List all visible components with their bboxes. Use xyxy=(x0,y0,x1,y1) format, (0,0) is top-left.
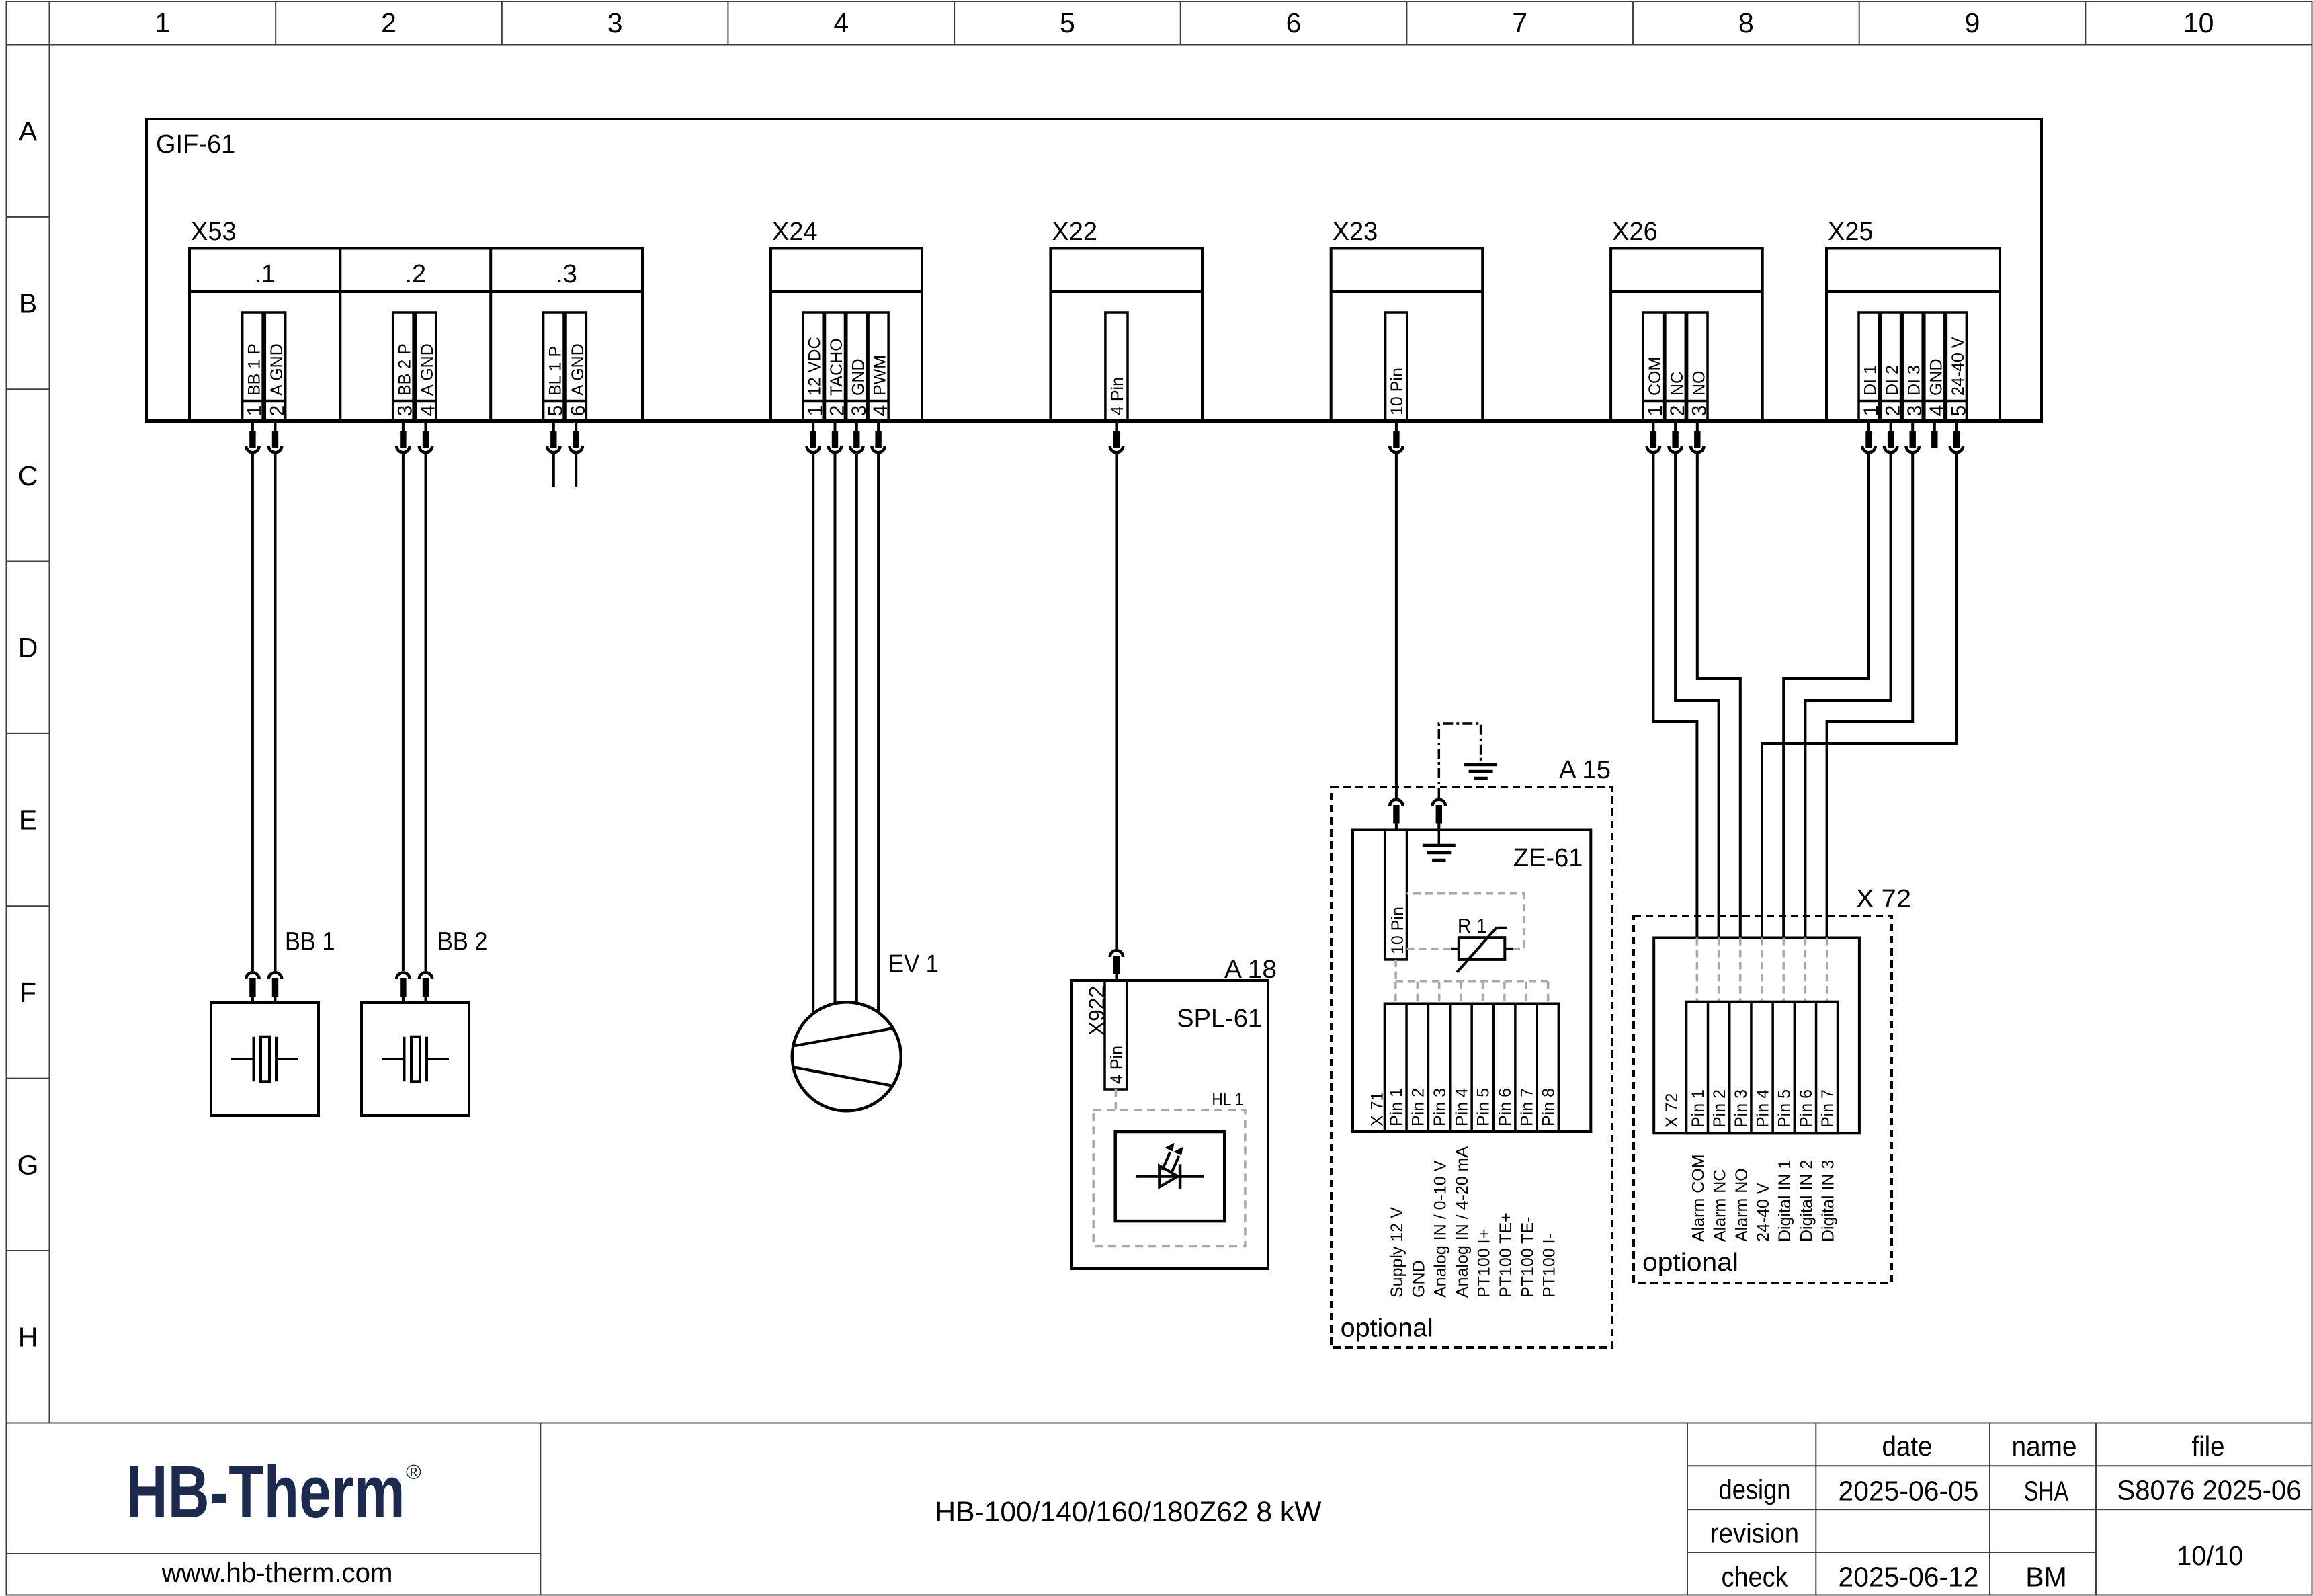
svg-text:Pin 5: Pin 5 xyxy=(1775,1089,1794,1128)
svg-text:COM: COM xyxy=(1646,357,1665,396)
svg-text:PT100 TE+: PT100 TE+ xyxy=(1497,1212,1515,1298)
svg-text:X25: X25 xyxy=(1828,218,1874,246)
svg-text:revision: revision xyxy=(1710,1518,1799,1549)
svg-text:BB 2: BB 2 xyxy=(437,928,488,956)
svg-text:Pin 8: Pin 8 xyxy=(1540,1088,1558,1126)
svg-text:X922: X922 xyxy=(1085,986,1109,1036)
svg-text:GND: GND xyxy=(1927,358,1945,396)
svg-text:Analog IN / 0-10 V: Analog IN / 0-10 V xyxy=(1431,1160,1450,1298)
svg-text:1: 1 xyxy=(804,405,827,417)
svg-text:A GND: A GND xyxy=(418,343,437,396)
svg-text:Pin 2: Pin 2 xyxy=(1409,1088,1428,1126)
svg-text:GND: GND xyxy=(849,358,868,396)
svg-text:X24: X24 xyxy=(772,218,818,246)
svg-text:GND: GND xyxy=(1409,1260,1428,1298)
svg-text:.2: .2 xyxy=(405,260,426,288)
svg-text:Pin 6: Pin 6 xyxy=(1496,1088,1515,1126)
svg-text:H: H xyxy=(18,1322,38,1353)
svg-text:ZE-61: ZE-61 xyxy=(1513,844,1583,872)
svg-text:Pin 3: Pin 3 xyxy=(1732,1089,1751,1128)
svg-text:A 15: A 15 xyxy=(1559,756,1611,784)
svg-text:Pin 5: Pin 5 xyxy=(1474,1088,1493,1126)
svg-text:SPL-61: SPL-61 xyxy=(1177,1005,1262,1033)
svg-text:10 Pin: 10 Pin xyxy=(1388,368,1406,415)
svg-text:date: date xyxy=(1882,1431,1933,1462)
svg-text:4: 4 xyxy=(870,405,892,417)
svg-text:Alarm NC: Alarm NC xyxy=(1711,1169,1730,1242)
svg-text:C: C xyxy=(18,460,38,491)
svg-text:4 Pin: 4 Pin xyxy=(1108,377,1127,415)
svg-text:10 Pin: 10 Pin xyxy=(1388,907,1407,954)
svg-text:A: A xyxy=(19,116,38,146)
svg-text:BL 1 P: BL 1 P xyxy=(546,346,565,396)
svg-text:1: 1 xyxy=(1860,405,1882,417)
svg-text:5: 5 xyxy=(1947,405,1970,417)
svg-text:X53: X53 xyxy=(191,218,237,246)
svg-text:2: 2 xyxy=(827,405,849,417)
svg-text:X23: X23 xyxy=(1333,218,1378,246)
svg-text:9: 9 xyxy=(1965,7,1980,38)
svg-text:Digital IN 2: Digital IN 2 xyxy=(1797,1160,1816,1242)
svg-text:HL 1: HL 1 xyxy=(1212,1089,1243,1109)
svg-text:EV 1: EV 1 xyxy=(888,950,939,978)
svg-text:S8076 2025-06: S8076 2025-06 xyxy=(2117,1475,2302,1506)
svg-text:Analog IN / 4-20 mA: Analog IN / 4-20 mA xyxy=(1453,1146,1472,1298)
svg-text:X 72: X 72 xyxy=(1663,1093,1681,1128)
svg-text:HB-100/140/160/180Z62 8 kW: HB-100/140/160/180Z62 8 kW xyxy=(935,1496,1321,1528)
svg-text:4 Pin: 4 Pin xyxy=(1107,1046,1126,1084)
svg-text:NC: NC xyxy=(1668,372,1687,396)
svg-text:PT100 TE-: PT100 TE- xyxy=(1518,1217,1537,1298)
svg-text:®: ® xyxy=(406,1460,421,1484)
svg-text:24-40 V: 24-40 V xyxy=(1949,337,1968,396)
svg-text:6: 6 xyxy=(1286,7,1302,38)
svg-text:Supply 12 V: Supply 12 V xyxy=(1388,1207,1406,1298)
svg-text:3: 3 xyxy=(1689,405,1711,417)
svg-text:X 72: X 72 xyxy=(1856,885,1911,913)
svg-text:F: F xyxy=(19,977,36,1008)
svg-text:Pin 1: Pin 1 xyxy=(1387,1088,1406,1126)
svg-text:www.hb-therm.com: www.hb-therm.com xyxy=(161,1558,392,1588)
svg-text:Digital IN 1: Digital IN 1 xyxy=(1775,1160,1794,1242)
svg-text:R 1: R 1 xyxy=(1458,914,1487,937)
svg-text:Pin 3: Pin 3 xyxy=(1431,1088,1449,1126)
svg-text:A GND: A GND xyxy=(569,343,587,396)
svg-text:.1: .1 xyxy=(254,260,276,288)
svg-text:6: 6 xyxy=(567,405,589,417)
svg-text:Pin 4: Pin 4 xyxy=(1452,1088,1471,1126)
svg-text:TACHO: TACHO xyxy=(827,338,846,396)
svg-text:check: check xyxy=(1722,1561,1788,1592)
svg-text:X 71: X 71 xyxy=(1368,1092,1387,1126)
svg-text:Pin 7: Pin 7 xyxy=(1818,1089,1837,1128)
svg-text:5: 5 xyxy=(545,405,567,417)
svg-text:file: file xyxy=(2192,1431,2225,1462)
svg-text:optional: optional xyxy=(1642,1249,1738,1277)
svg-text:DI 2: DI 2 xyxy=(1883,365,1902,396)
svg-text:X26: X26 xyxy=(1612,218,1658,246)
svg-text:1: 1 xyxy=(244,405,266,417)
svg-text:8: 8 xyxy=(1738,7,1754,38)
svg-text:1: 1 xyxy=(155,7,170,38)
svg-text:E: E xyxy=(19,805,37,836)
svg-text:2: 2 xyxy=(1667,405,1689,417)
svg-text:1: 1 xyxy=(1644,405,1667,417)
svg-text:Pin 6: Pin 6 xyxy=(1797,1089,1816,1128)
svg-text:12 VDC: 12 VDC xyxy=(806,337,825,396)
svg-text:10/10: 10/10 xyxy=(2177,1540,2243,1571)
svg-text:Alarm NO: Alarm NO xyxy=(1732,1168,1751,1242)
svg-text:5: 5 xyxy=(1060,7,1075,38)
svg-text:BB 2 P: BB 2 P xyxy=(396,343,415,396)
svg-text:4: 4 xyxy=(833,7,849,38)
svg-text:2: 2 xyxy=(381,7,396,38)
svg-text:.3: .3 xyxy=(556,260,577,288)
svg-text:PT100 I+: PT100 I+ xyxy=(1475,1229,1494,1298)
svg-text:Pin 7: Pin 7 xyxy=(1517,1088,1536,1126)
svg-text:Pin 4: Pin 4 xyxy=(1753,1089,1772,1128)
svg-text:X22: X22 xyxy=(1052,218,1097,246)
svg-text:3: 3 xyxy=(394,405,417,417)
svg-text:Digital IN 3: Digital IN 3 xyxy=(1819,1160,1838,1242)
svg-text:Alarm COM: Alarm COM xyxy=(1689,1154,1708,1242)
svg-text:7: 7 xyxy=(1512,7,1527,38)
svg-text:2025-06-12: 2025-06-12 xyxy=(1839,1561,1979,1592)
svg-text:NO: NO xyxy=(1690,371,1709,396)
svg-text:BM: BM xyxy=(2025,1561,2067,1592)
svg-text:GIF-61: GIF-61 xyxy=(156,130,235,159)
svg-text:4: 4 xyxy=(1926,405,1948,417)
svg-text:3: 3 xyxy=(1904,405,1926,417)
svg-text:2: 2 xyxy=(1882,405,1904,417)
svg-text:10: 10 xyxy=(2183,7,2214,38)
svg-text:3: 3 xyxy=(848,405,870,417)
svg-text:A GND: A GND xyxy=(267,343,286,396)
svg-text:SHA: SHA xyxy=(2024,1476,2069,1507)
svg-text:DI 3: DI 3 xyxy=(1905,365,1924,396)
svg-text:D: D xyxy=(18,632,38,663)
svg-text:2025-06-05: 2025-06-05 xyxy=(1839,1476,1979,1507)
svg-text:BB 1: BB 1 xyxy=(285,928,335,956)
svg-text:PWM: PWM xyxy=(871,355,890,396)
svg-text:PT100 I-: PT100 I- xyxy=(1540,1233,1559,1298)
svg-text:Pin 1: Pin 1 xyxy=(1689,1089,1708,1128)
svg-text:3: 3 xyxy=(607,7,623,38)
svg-text:design: design xyxy=(1719,1474,1791,1505)
svg-text:name: name xyxy=(2012,1431,2077,1462)
svg-text:BB 1 P: BB 1 P xyxy=(245,343,264,396)
svg-text:B: B xyxy=(19,288,37,319)
svg-text:2: 2 xyxy=(266,405,288,417)
svg-text:optional: optional xyxy=(1341,1314,1433,1343)
svg-text:4: 4 xyxy=(417,405,439,417)
svg-text:DI 1: DI 1 xyxy=(1861,365,1880,396)
svg-text:24-40 V: 24-40 V xyxy=(1754,1183,1773,1242)
svg-text:Pin 2: Pin 2 xyxy=(1710,1089,1729,1128)
svg-text:HB-Therm: HB-Therm xyxy=(126,1451,405,1534)
svg-text:G: G xyxy=(17,1149,39,1180)
